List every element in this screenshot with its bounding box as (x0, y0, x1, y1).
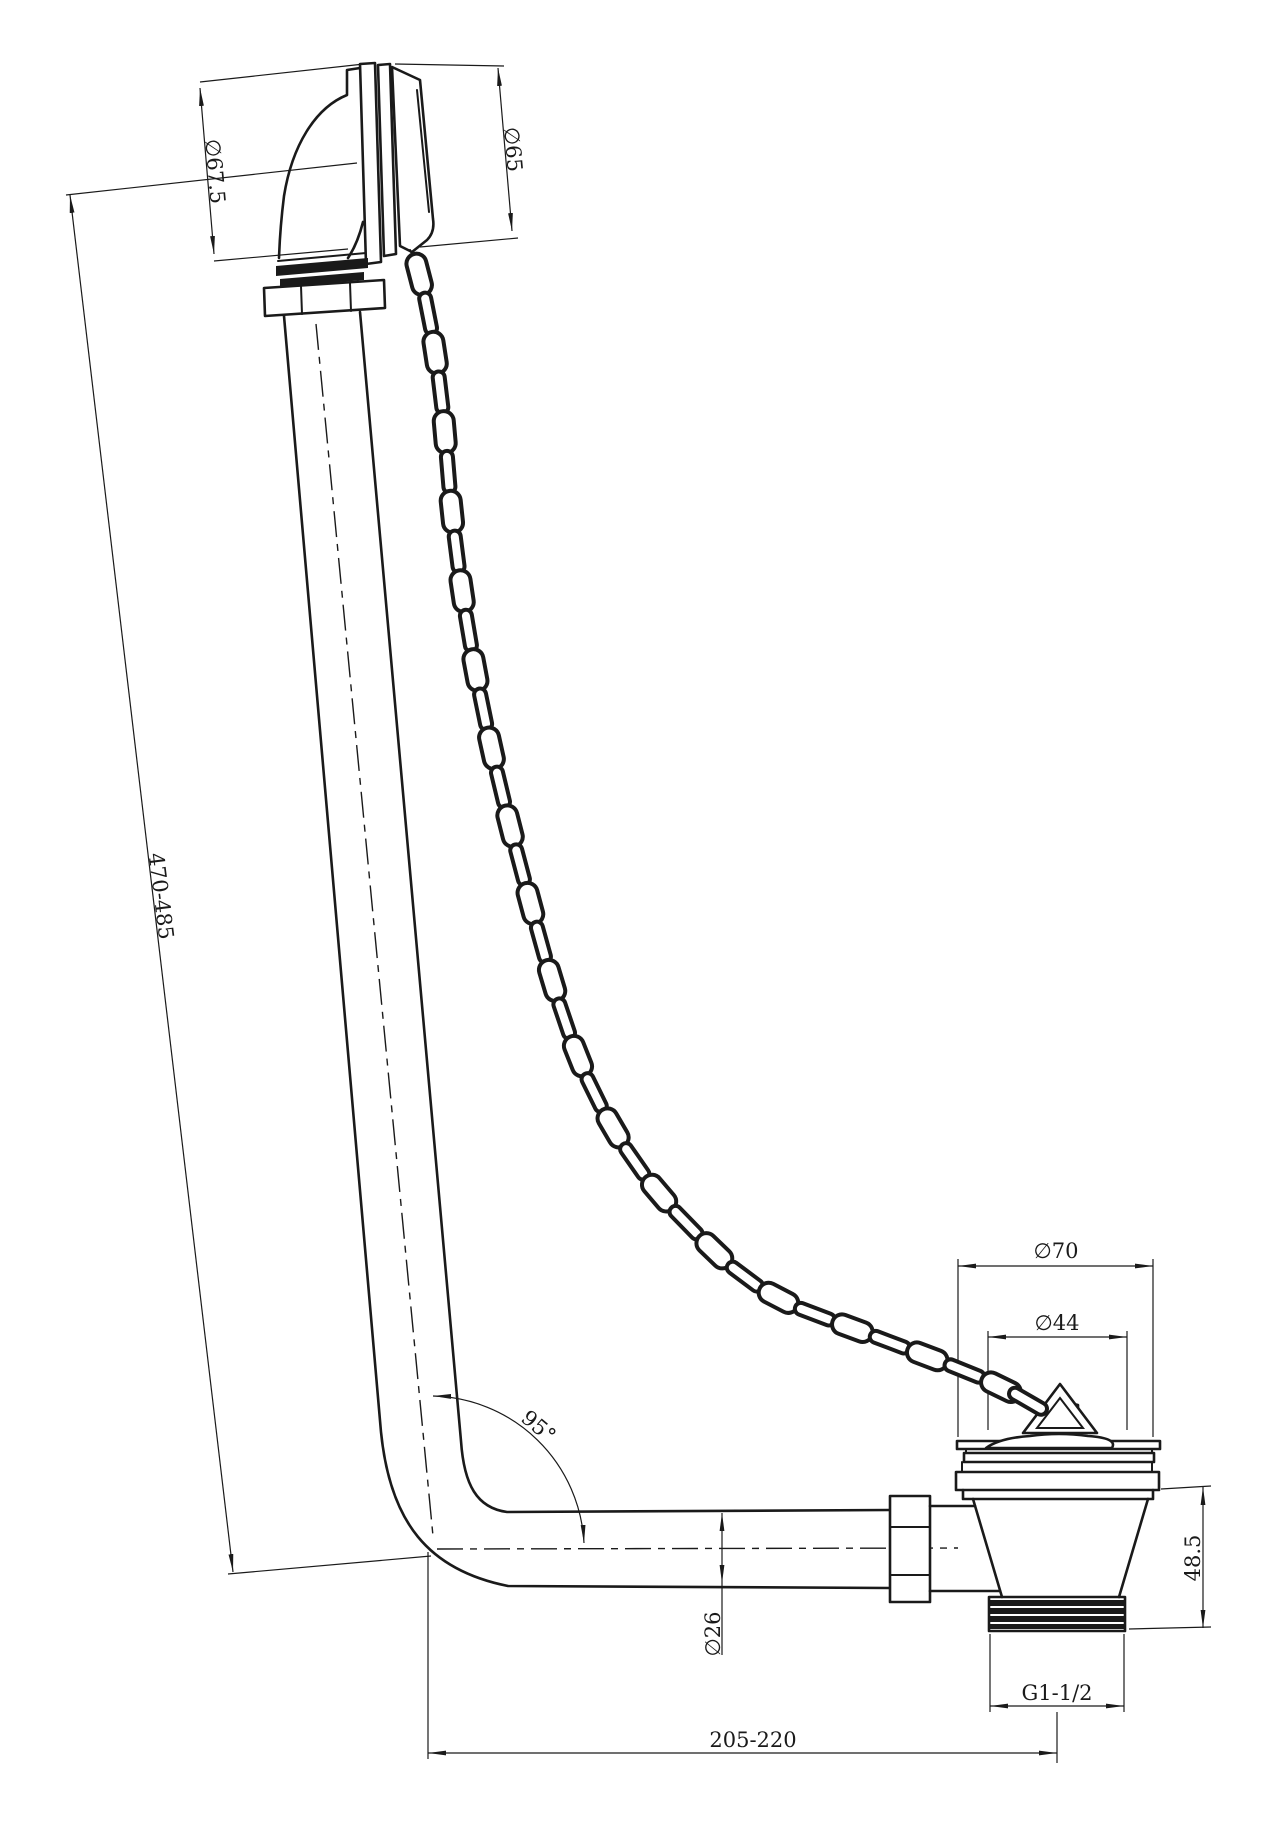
chain-link (515, 881, 545, 927)
chain-link (449, 569, 475, 613)
dim-label-flange-diameter: ∅70 (1033, 1239, 1078, 1263)
chain-link (552, 997, 577, 1041)
dim-label-horizontal-run: 205-220 (709, 1728, 796, 1752)
chain-link (477, 726, 506, 771)
chain-link (440, 450, 455, 493)
chain-link (462, 648, 489, 693)
overflow-pipe (284, 312, 890, 1588)
overflow-elbow (278, 68, 366, 261)
chain-link (473, 687, 493, 731)
chain-link (448, 530, 465, 573)
overflow-cover (360, 63, 433, 264)
chain-link (459, 609, 478, 652)
dimension-body-height: 48.5 (1129, 1486, 1211, 1629)
chain-link (433, 410, 457, 454)
chain-link (422, 330, 448, 375)
dim-label-bend-angle: 95° (517, 1405, 561, 1447)
chain-link (418, 292, 438, 336)
chain-link (490, 765, 511, 809)
dim-label-overflow-cover: ∅65 (499, 126, 527, 173)
dimension-overflow-face: ∅67.5 (200, 64, 364, 261)
chain-link (495, 803, 525, 849)
overflow-thread-nut (264, 258, 385, 316)
dimension-horizontal-run: 205-220 (428, 1552, 1057, 1759)
chain-link (509, 843, 531, 887)
chain-link (440, 490, 464, 534)
dimension-outlet-thread: G1-1/2 (990, 1634, 1124, 1763)
dim-label-outlet-thread: G1-1/2 (1021, 1681, 1092, 1705)
waste-body (956, 1441, 1160, 1631)
chain-link (536, 957, 567, 1003)
pipe-centerlines (316, 324, 958, 1549)
dim-label-pipe-diameter: ∅26 (701, 1611, 725, 1656)
technical-drawing-page: ∅67.5 ∅65 470-485 95° ∅26 ∅70 ∅44 (0, 0, 1273, 1821)
dim-label-overflow-face: ∅67.5 (200, 138, 230, 205)
dim-label-pipe-length: 470-485 (144, 851, 178, 941)
chain-link (1007, 1386, 1049, 1417)
dim-label-plug-diameter: ∅44 (1034, 1311, 1079, 1335)
chain-link (432, 371, 449, 414)
drawing-canvas: ∅67.5 ∅65 470-485 95° ∅26 ∅70 ∅44 (0, 0, 1273, 1821)
dimension-bend-angle: 95° (433, 1396, 584, 1543)
chain-link (530, 920, 553, 964)
plug-chain (404, 252, 1049, 1417)
dim-label-body-height: 48.5 (1181, 1535, 1205, 1582)
waste-connection-nut (890, 1496, 1000, 1602)
dimension-pipe-diameter: ∅26 (701, 1513, 725, 1657)
chain-link (404, 252, 434, 298)
